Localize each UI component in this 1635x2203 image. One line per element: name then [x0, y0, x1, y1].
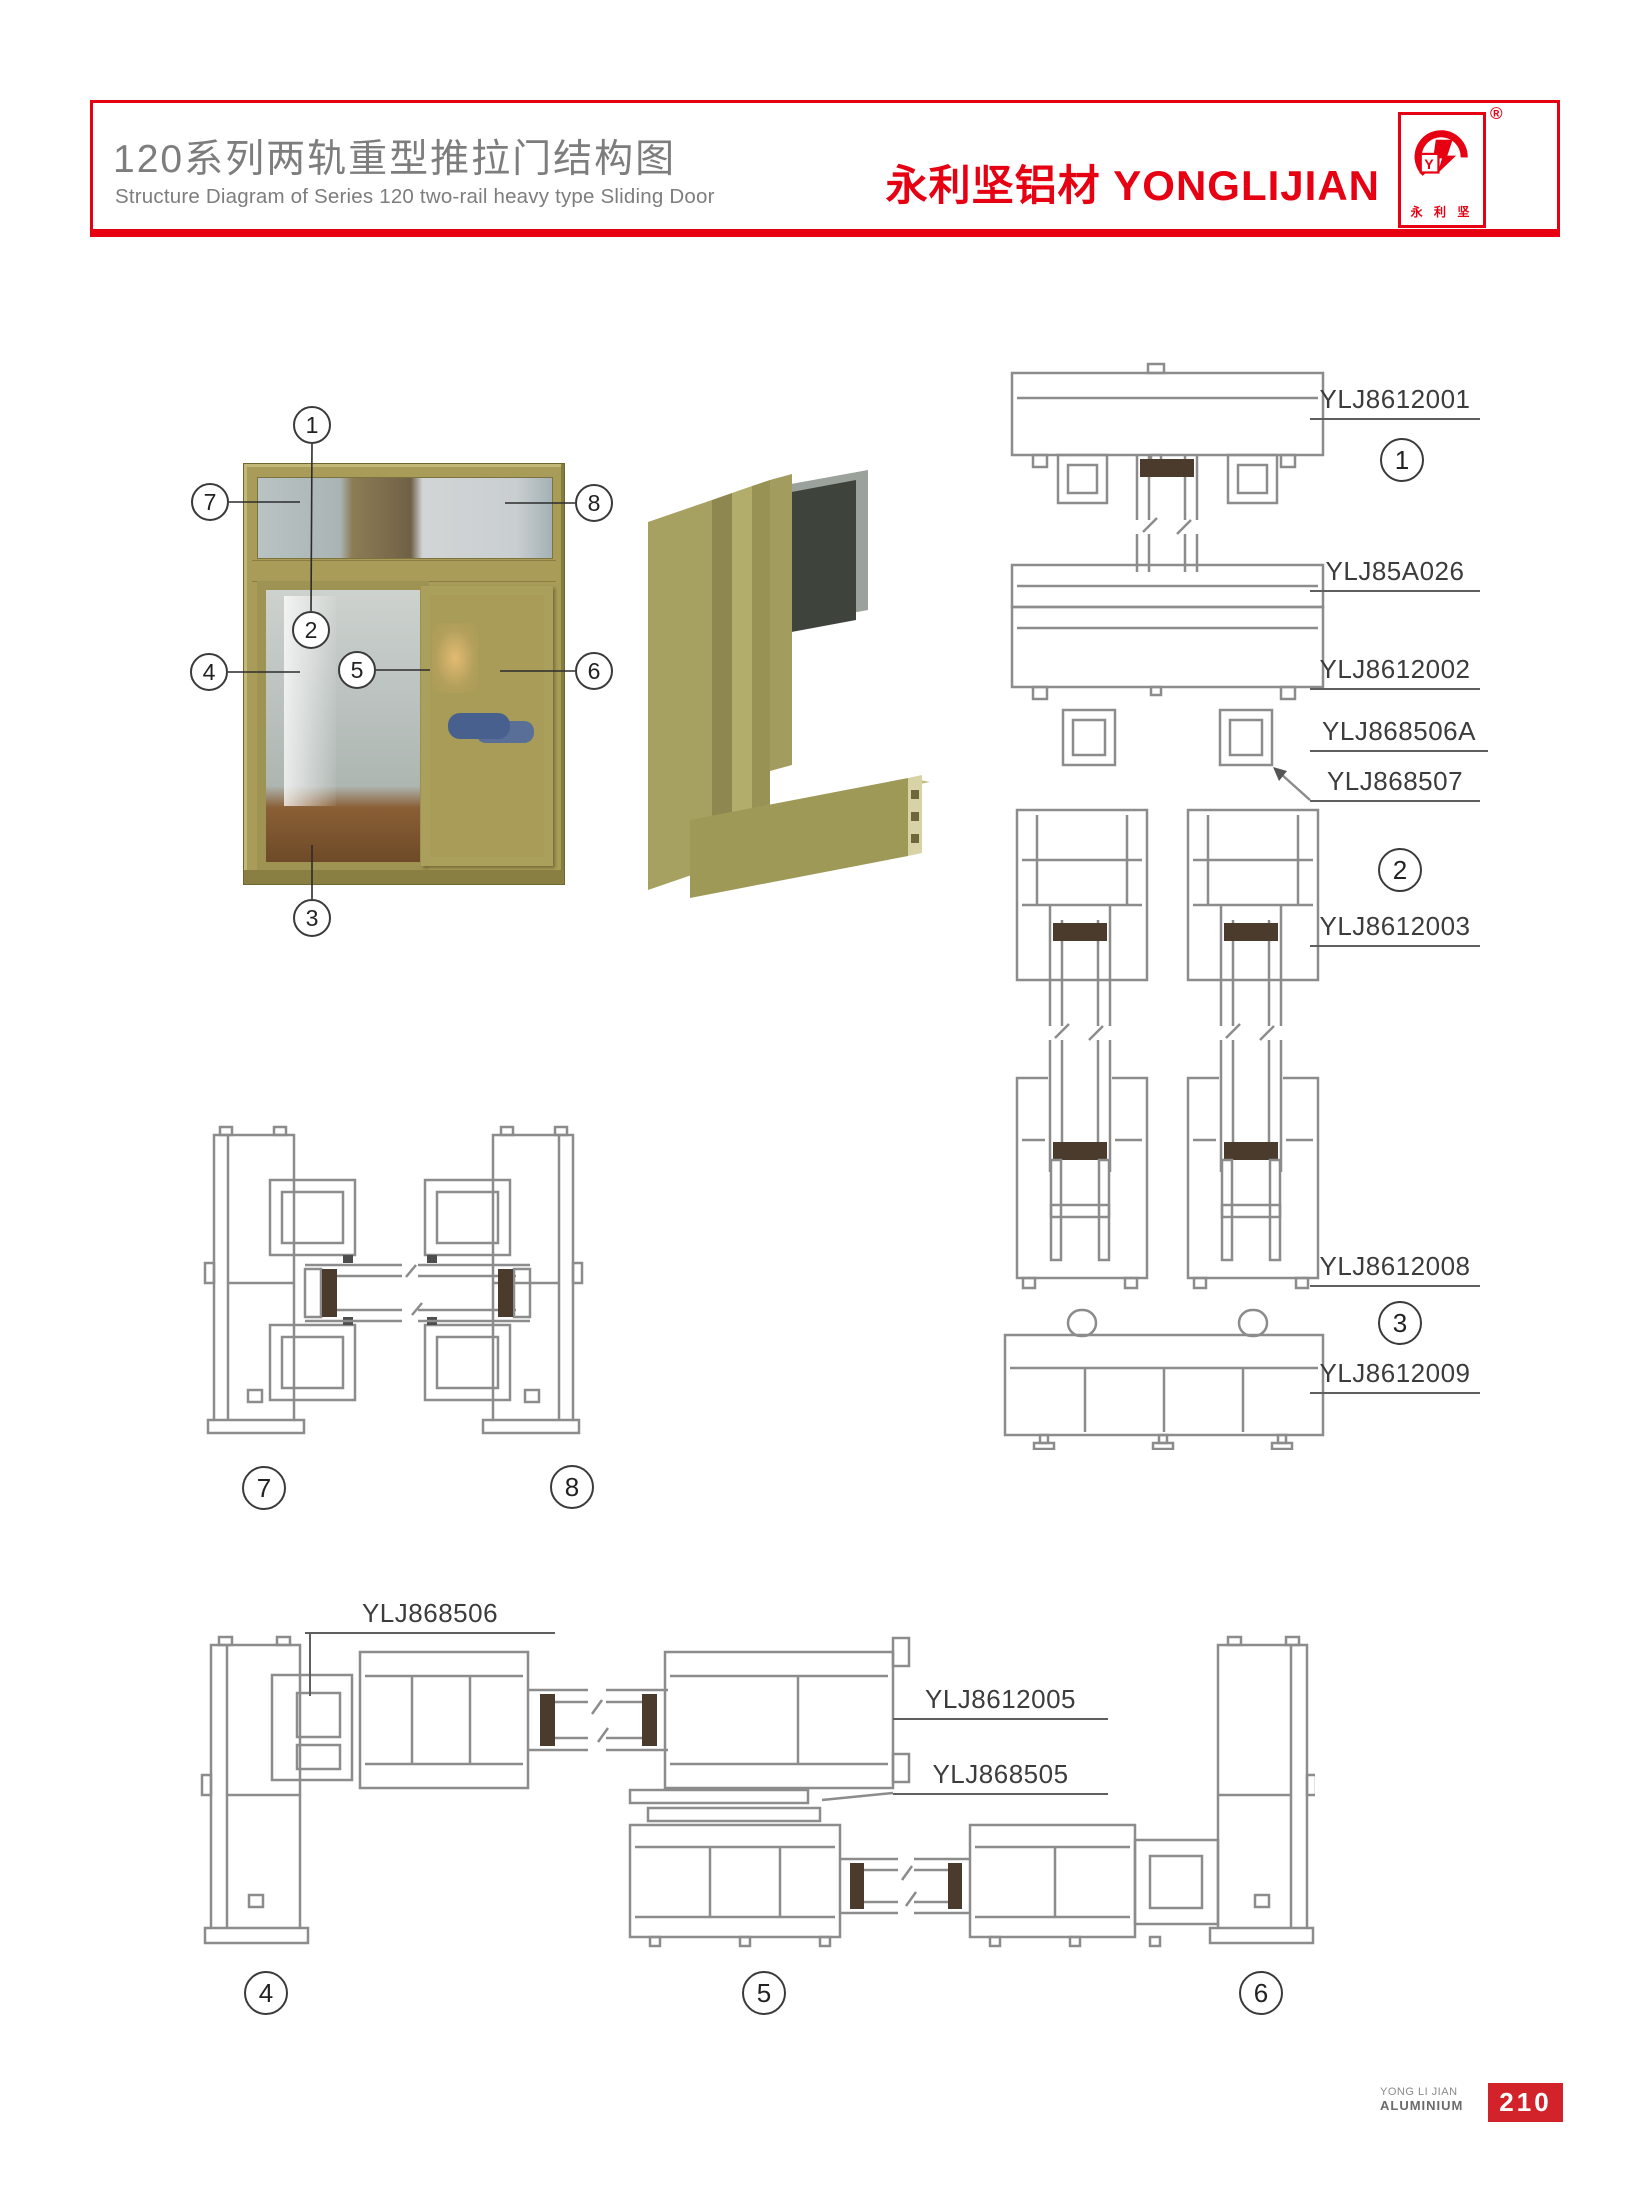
header-left-rule: [90, 100, 93, 237]
part-label-ylj85a026: YLJ85A026: [1310, 556, 1480, 592]
door-top-frame-profile: [1012, 607, 1323, 800]
section-callout-3: 3: [1378, 1301, 1422, 1345]
profile-3d-render: [630, 460, 930, 900]
bottom-track-profile: [1005, 1335, 1323, 1449]
brand-logo: Y 永 利 坚: [1398, 112, 1486, 228]
upper-panel-row: [360, 1638, 909, 1788]
logo-caption: 永 利 坚: [1411, 203, 1474, 220]
part-label-ylj8612005: YLJ8612005: [893, 1684, 1108, 1720]
part-label-ylj8612008: YLJ8612008: [1310, 1251, 1480, 1287]
section-callout-1: 1: [1380, 438, 1424, 482]
brand-swirl-icon: Y: [1411, 119, 1473, 187]
page-title: 120系列两轨重型推拉门结构图: [113, 128, 676, 184]
part-label-ylj868505: YLJ868505: [893, 1759, 1108, 1795]
section-callout-7: 7: [242, 1466, 286, 1510]
part-label-ylj8612001: YLJ8612001: [1310, 384, 1480, 420]
transom-glass-unit: [1129, 455, 1205, 572]
section-callout-2: 2: [1378, 848, 1422, 892]
sash-sections: [1017, 810, 1318, 1336]
part-label-ylj8612002: YLJ8612002: [1310, 654, 1480, 690]
page-subtitle: Structure Diagram of Series 120 two-rail…: [115, 185, 715, 209]
part-label-ylj868506a: YLJ868506A: [1310, 716, 1488, 752]
footer-company-line2: ALUMINIUM: [1380, 2099, 1484, 2114]
callout-4: 4: [190, 653, 228, 691]
header-top-rule: [90, 100, 1560, 103]
page-number-badge: 210: [1488, 2083, 1563, 2122]
corner-joint-part: [272, 1675, 352, 1780]
lower-panel-row: [630, 1825, 1218, 1946]
brand-name: 永利坚铝材 YONGLIJIAN: [860, 152, 1380, 213]
callout-3: 3: [293, 899, 331, 937]
vertical-section-diagram: [985, 360, 1325, 1450]
horizontal-section-diagram-456: [150, 1630, 1315, 1950]
section-callout-8: 8: [550, 1465, 594, 1509]
part-label-ylj8612009: YLJ8612009: [1310, 1358, 1480, 1394]
section-callout-5: 5: [742, 1971, 786, 2015]
top-frame-profile: [1012, 364, 1323, 503]
label-leader-868505: [822, 1793, 893, 1800]
part-label-ylj868506: YLJ868506: [305, 1598, 555, 1634]
glass-unit-horizontal: [305, 1257, 530, 1329]
transom-adapter-profile: [1012, 565, 1323, 607]
section-callout-4: 4: [244, 1971, 288, 2015]
callout-2: 2: [292, 611, 330, 649]
section-callout-6: 6: [1239, 1971, 1283, 2015]
callout-8: 8: [575, 484, 613, 522]
callout-7: 7: [191, 483, 229, 521]
callout-1: 1: [293, 406, 331, 444]
callout-5: 5: [338, 651, 376, 689]
part-label-ylj8612003: YLJ8612003: [1310, 911, 1480, 947]
label-leader-868506: [309, 1632, 311, 1696]
footer-company: YONG LI JIAN ALUMINIUM: [1380, 2086, 1484, 2114]
callout-6: 6: [575, 652, 613, 690]
registered-trademark-icon: ®: [1490, 104, 1503, 124]
footer-company-line1: YONG LI JIAN: [1380, 2086, 1484, 2099]
logo-monogram: Y: [1424, 157, 1434, 173]
horizontal-section-diagram-78: [150, 1125, 630, 1455]
header-right-rule: [1557, 100, 1560, 237]
part-label-ylj868507: YLJ868507: [1310, 766, 1480, 802]
catalog-page: 120系列两轨重型推拉门结构图 Structure Diagram of Ser…: [0, 0, 1635, 2203]
header-bottom-rule: [90, 229, 1560, 237]
interlock-strips: [630, 1790, 820, 1821]
